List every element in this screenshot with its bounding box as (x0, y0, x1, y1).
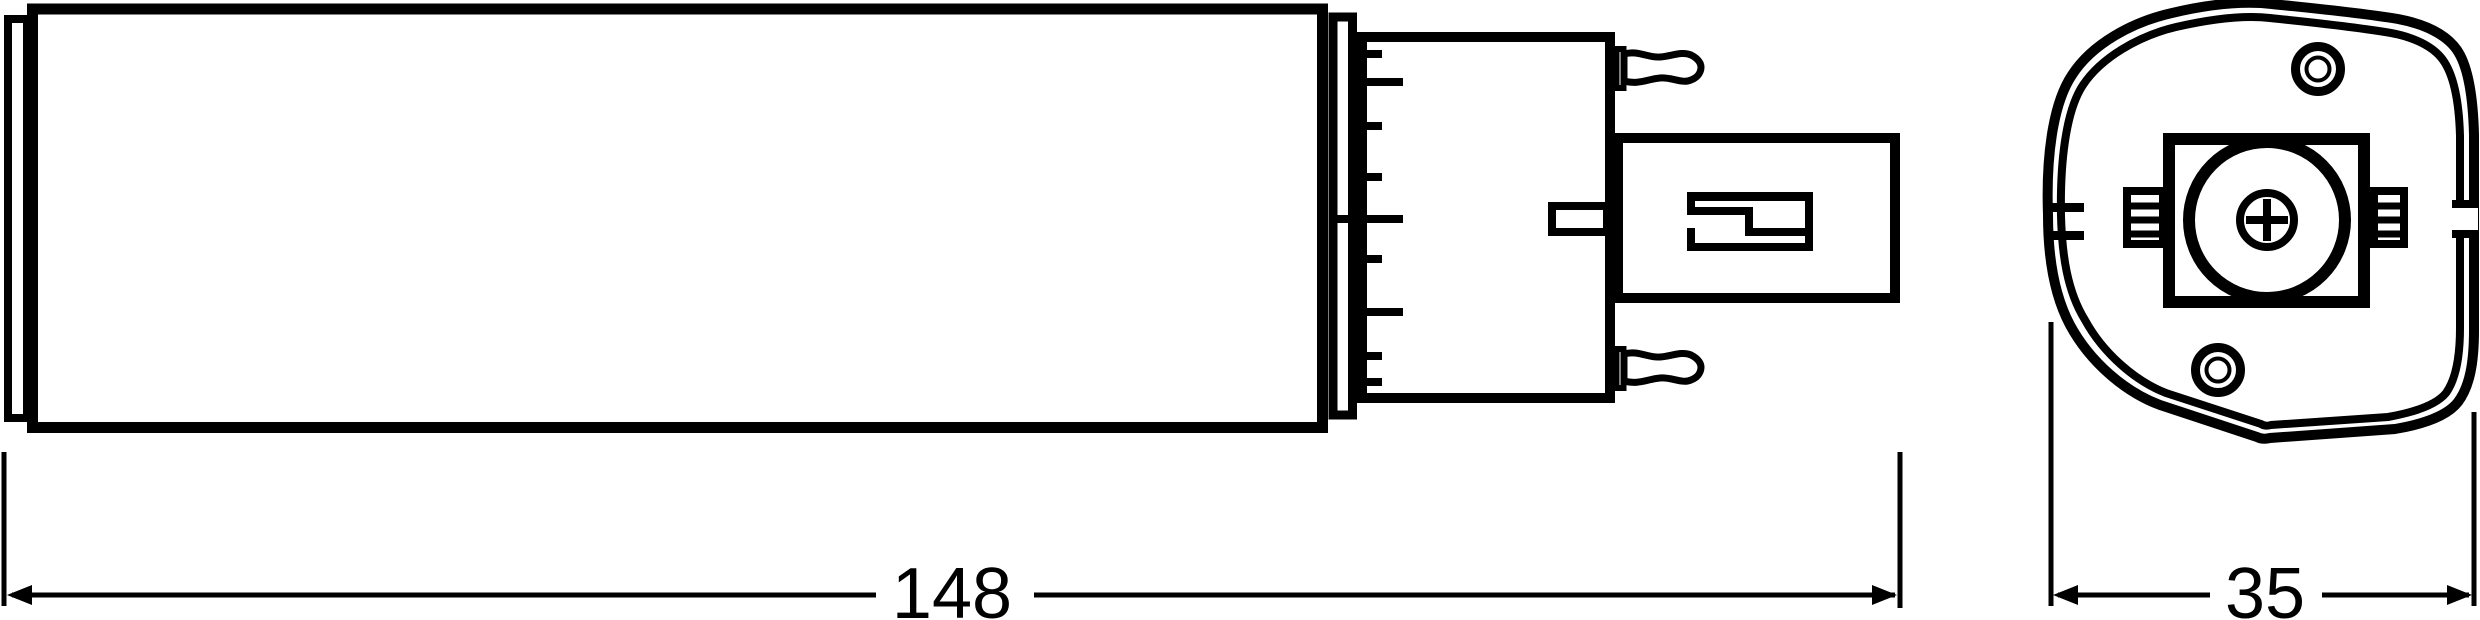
base-notch (1552, 206, 1607, 232)
left-spring-tab (2123, 191, 2163, 244)
drawing-svg: 148 35 (0, 0, 2480, 620)
lamp-end-cap (8, 19, 27, 418)
center-screw (2240, 193, 2294, 247)
arrowhead-left (2053, 585, 2078, 605)
end-view (2048, 3, 2478, 439)
dimension-length: 148 (4, 452, 1900, 620)
right-edge-notch (2452, 200, 2478, 238)
lamp-body (33, 9, 1323, 428)
arrowhead-left (7, 585, 32, 605)
center-key (1618, 138, 1895, 298)
length-value: 148 (892, 554, 1012, 620)
right-spring-tab (2374, 191, 2404, 244)
pin-top (1617, 49, 1702, 88)
lamp-dimension-drawing: 148 35 (0, 0, 2480, 620)
pin-bottom (1617, 349, 1702, 388)
side-view (8, 9, 1895, 428)
arrowhead-right (1872, 585, 1897, 605)
arrowhead-right (2447, 585, 2472, 605)
width-value: 35 (2225, 554, 2305, 620)
